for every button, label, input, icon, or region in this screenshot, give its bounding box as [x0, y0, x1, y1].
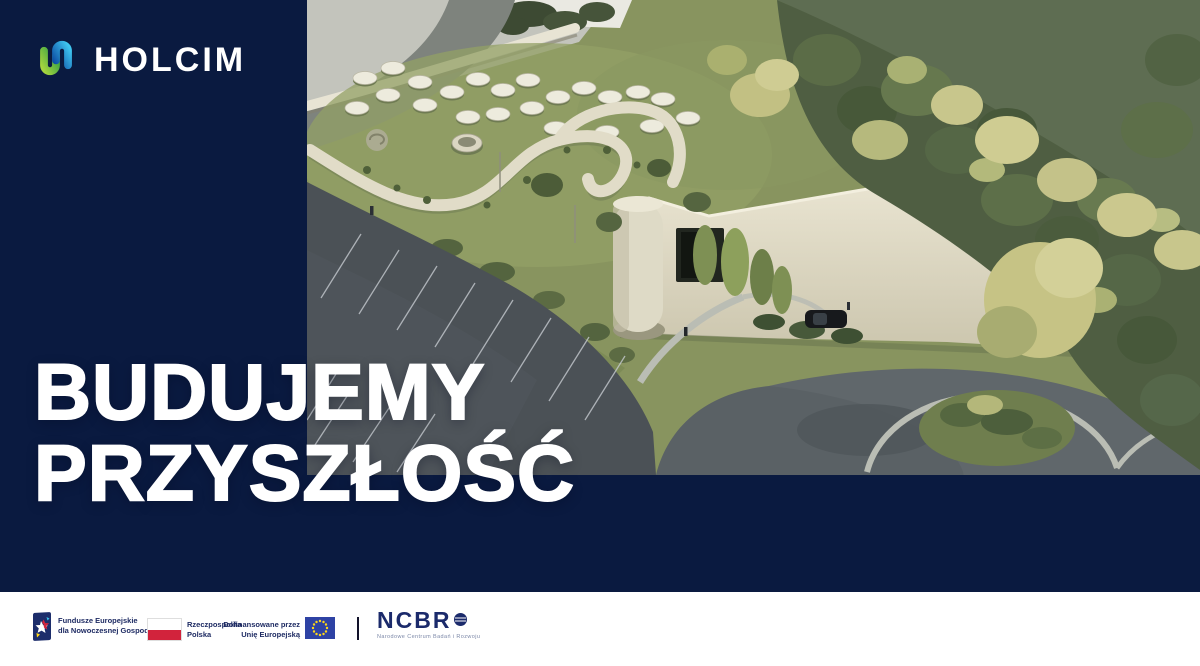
- eu-funds-label: Fundusze Europejskie dla Nowoczesnej Gos…: [58, 616, 162, 635]
- banner: HOLCIM BUDUJEMY PRZYSZŁOŚĆ Fundusze Euro…: [0, 0, 1200, 666]
- holcim-logo: HOLCIM: [32, 34, 246, 82]
- eu-funds-line2: dla Nowoczesnej Gospodarki: [58, 626, 162, 636]
- partner-logo-strip: Fundusze Europejskie dla Nowoczesnej Gos…: [0, 592, 1200, 666]
- ncbr-logo: NCBR Narodowe Centrum Badań i Rozwoju: [377, 608, 480, 640]
- footer-divider: [357, 617, 359, 640]
- eu-cofunding-line1: Dofinansowane przez: [214, 620, 300, 630]
- brand-wordmark: HOLCIM: [94, 41, 246, 80]
- headline-line1: BUDUJEMY: [34, 351, 575, 432]
- ncbr-globe-icon: [454, 613, 467, 626]
- poland-flag-icon: [148, 619, 181, 640]
- ncbr-subtitle: Narodowe Centrum Badań i Rozwoju: [377, 634, 480, 640]
- eu-flag-icon: [305, 617, 335, 639]
- ncbr-wordmark: NCBR: [377, 608, 451, 632]
- headline: BUDUJEMY PRZYSZŁOŚĆ: [34, 351, 575, 513]
- eu-funds-line1: Fundusze Europejskie: [58, 616, 162, 626]
- headline-line2: PRZYSZŁOŚĆ: [34, 432, 575, 513]
- eu-funds-flag-icon: [33, 612, 52, 642]
- eu-cofunding-label: Dofinansowane przez Unię Europejską: [214, 620, 300, 639]
- eu-cofunding-line2: Unię Europejską: [214, 630, 300, 640]
- holcim-link-icon: [32, 34, 80, 82]
